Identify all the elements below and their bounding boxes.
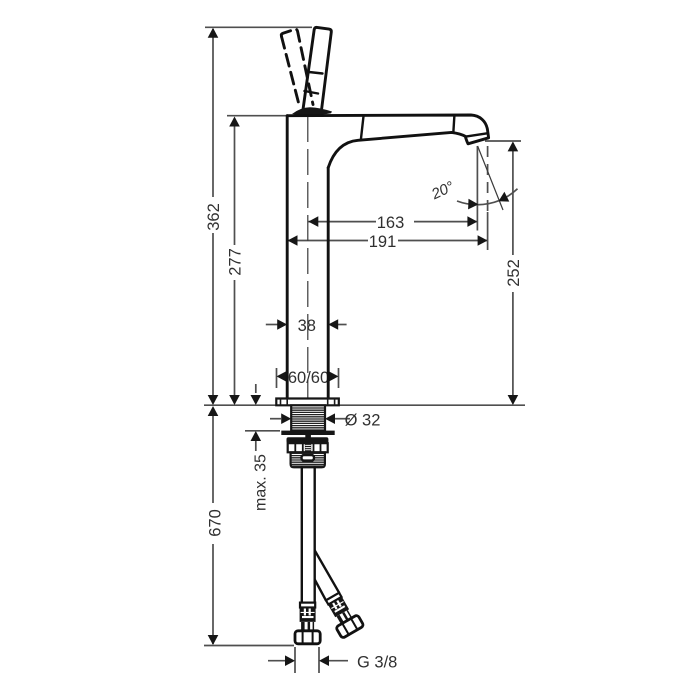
svg-text:38: 38 (298, 317, 316, 335)
svg-text:max. 35: max. 35 (253, 454, 270, 511)
svg-text:252: 252 (505, 259, 523, 287)
svg-text:60/60: 60/60 (288, 369, 329, 387)
svg-text:362: 362 (205, 203, 223, 231)
svg-text:163: 163 (377, 214, 405, 232)
svg-text:670: 670 (207, 509, 225, 537)
svg-text:G 3/8: G 3/8 (357, 653, 397, 671)
svg-text:191: 191 (369, 233, 397, 251)
svg-text:277: 277 (227, 248, 245, 276)
svg-text:Ø 32: Ø 32 (345, 412, 381, 430)
